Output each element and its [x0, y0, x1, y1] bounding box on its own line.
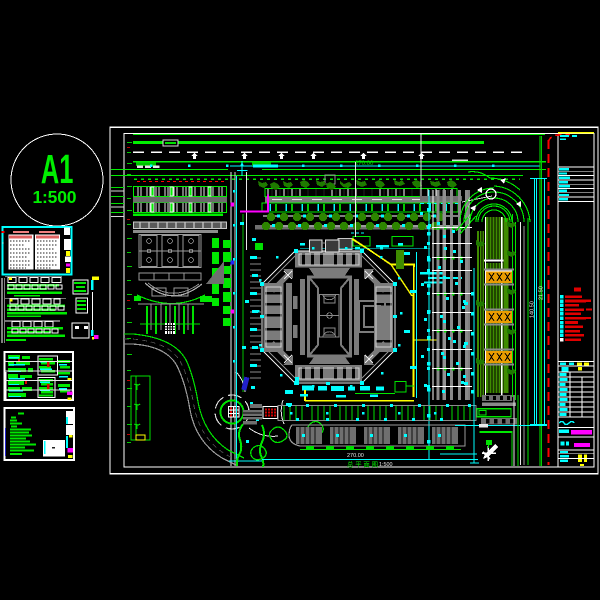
svg-text:21.50: 21.50 [539, 286, 545, 300]
svg-text:270.00: 270.00 [347, 453, 364, 459]
svg-text:140.50: 140.50 [530, 301, 536, 318]
svg-text:1:500: 1:500 [379, 462, 393, 468]
svg-text:270.00: 270.00 [355, 161, 374, 167]
svg-text:总平面图: 总平面图 [347, 460, 378, 469]
svg-text:A1: A1 [41, 147, 74, 193]
svg-text:1:500: 1:500 [33, 187, 77, 207]
